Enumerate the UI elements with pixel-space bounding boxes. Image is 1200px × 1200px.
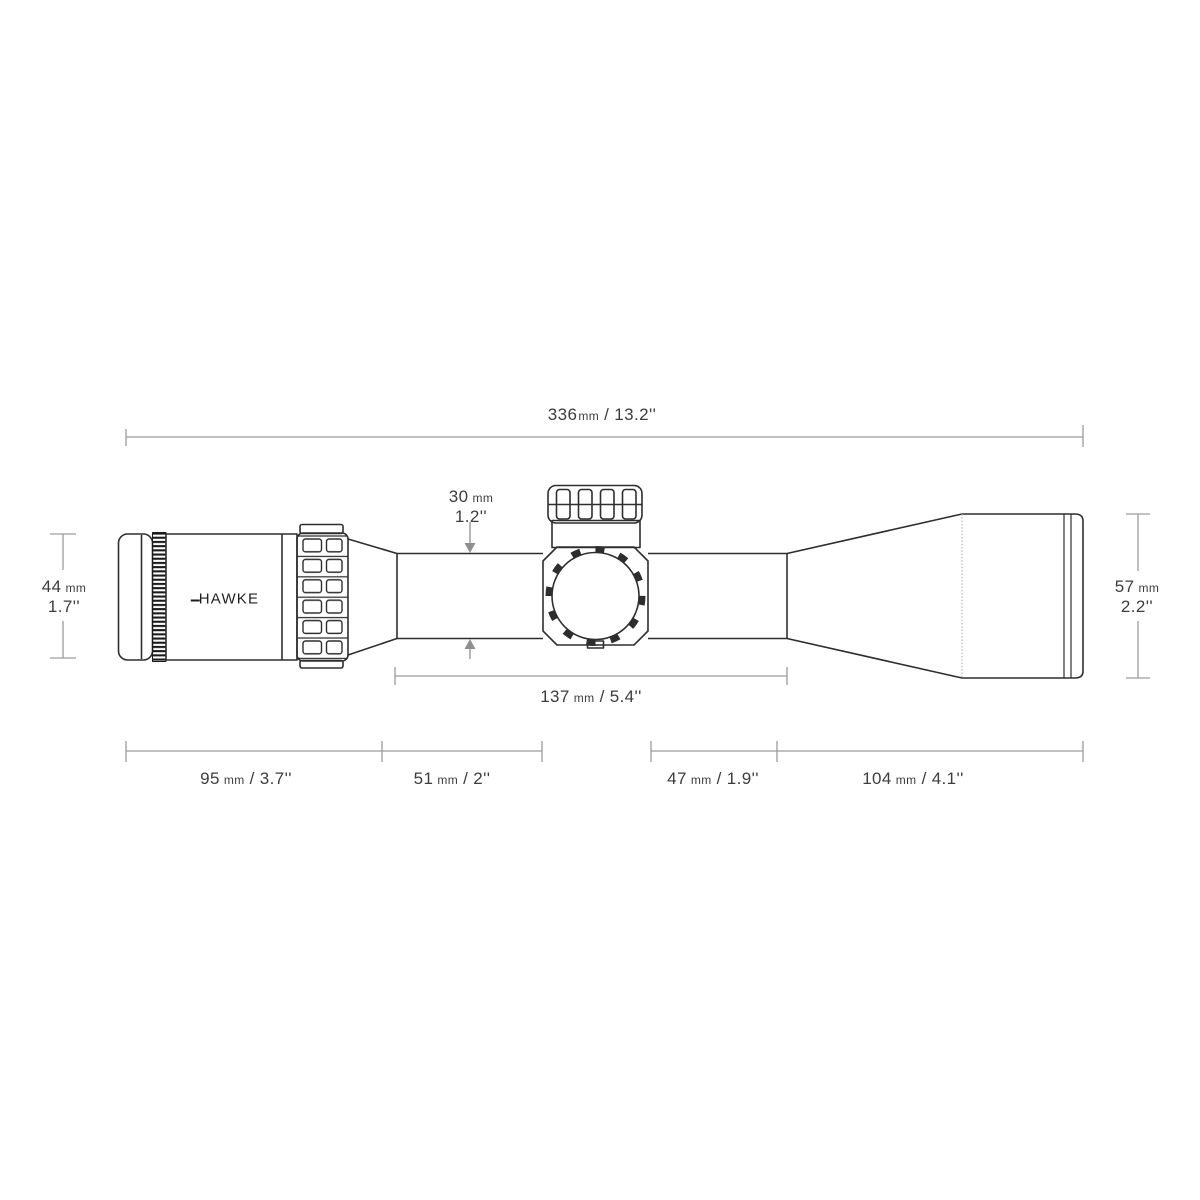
dim-label-objective-diameter: 57mm 2.2'' bbox=[1115, 578, 1160, 615]
dim-label-overall-length: 336mm/13.2'' bbox=[548, 406, 656, 426]
objective-bell bbox=[962, 514, 1083, 678]
dim-line-overall bbox=[126, 425, 1083, 447]
dim-label-tube-diameter: 30mm 1.2'' bbox=[449, 488, 494, 525]
dim-line-bottom-segments bbox=[126, 741, 1083, 762]
dim-label-segment-eyepiece: 95mm/3.7'' bbox=[200, 770, 292, 790]
dim-label-eyepiece-diameter: 44mm 1.7'' bbox=[42, 578, 87, 615]
dim-label-segment-tube-right: 47mm/1.9'' bbox=[667, 770, 759, 790]
eyepiece-end-cap bbox=[119, 534, 153, 660]
dim-line-mount-span bbox=[395, 667, 787, 685]
main-tube-left bbox=[397, 554, 543, 639]
dim-label-mount-span: 137mm/5.4'' bbox=[540, 688, 642, 708]
dim-label-segment-objective: 104mm/4.1'' bbox=[862, 770, 964, 790]
turret-saddle bbox=[543, 547, 648, 645]
taper-left bbox=[348, 539, 397, 655]
scope-line-art bbox=[0, 0, 1200, 1200]
hawke-logo-text: HAWKE bbox=[199, 591, 259, 608]
elevation-turret bbox=[548, 486, 642, 548]
scope-dimension-diagram: HAWKE 336mm/13.2'' 30mm 1.2'' 44mm 1.7''… bbox=[0, 0, 1200, 1200]
zoom-ring bbox=[297, 525, 348, 669]
windage-turret bbox=[549, 550, 642, 649]
knurled-lock-ring bbox=[153, 533, 167, 662]
dim-label-segment-tube-left: 51mm/2'' bbox=[414, 770, 491, 790]
main-tube-right bbox=[648, 554, 787, 639]
taper-right bbox=[787, 514, 962, 678]
hawke-logo: HAWKE bbox=[191, 591, 259, 608]
scope-body bbox=[119, 486, 1084, 679]
